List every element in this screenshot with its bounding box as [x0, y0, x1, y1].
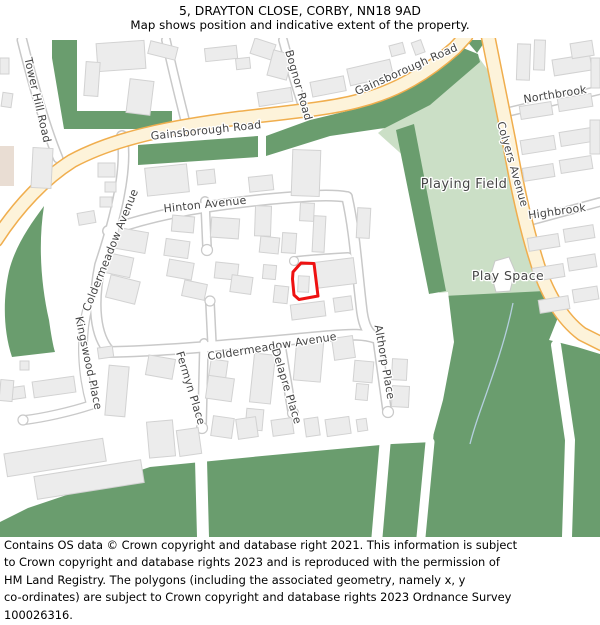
title-block: 5, DRAYTON CLOSE, CORBY, NN18 9AD Map sh…: [0, 0, 600, 38]
footer-line: co-ordinates) are subject to Crown copyr…: [0, 589, 600, 606]
map-canvas: Tower Hill Road Gainsborough Road Gainsb…: [0, 38, 600, 537]
map-svg: Tower Hill Road Gainsborough Road Gainsb…: [0, 38, 600, 537]
footer-line: Contains OS data © Crown copyright and d…: [0, 537, 600, 554]
footer-line: to Crown copyright and database rights 2…: [0, 554, 600, 571]
area-label-play-space: Play Space: [472, 268, 544, 283]
footer-attribution: Contains OS data © Crown copyright and d…: [0, 537, 600, 625]
page-title: 5, DRAYTON CLOSE, CORBY, NN18 9AD: [0, 0, 600, 18]
footer-line: 100026316.: [0, 607, 600, 624]
page: 5, DRAYTON CLOSE, CORBY, NN18 9AD Map sh…: [0, 0, 600, 625]
road-label-tower-hill: Tower Hill Road: [21, 55, 53, 144]
area-label-playing-field: Playing Field: [421, 177, 508, 192]
beige-building: [0, 146, 14, 186]
page-subtitle: Map shows position and indicative extent…: [0, 18, 600, 33]
road-label-highbrook: Highbrook: [527, 201, 587, 222]
footer-line: HM Land Registry. The polygons (includin…: [0, 572, 600, 589]
